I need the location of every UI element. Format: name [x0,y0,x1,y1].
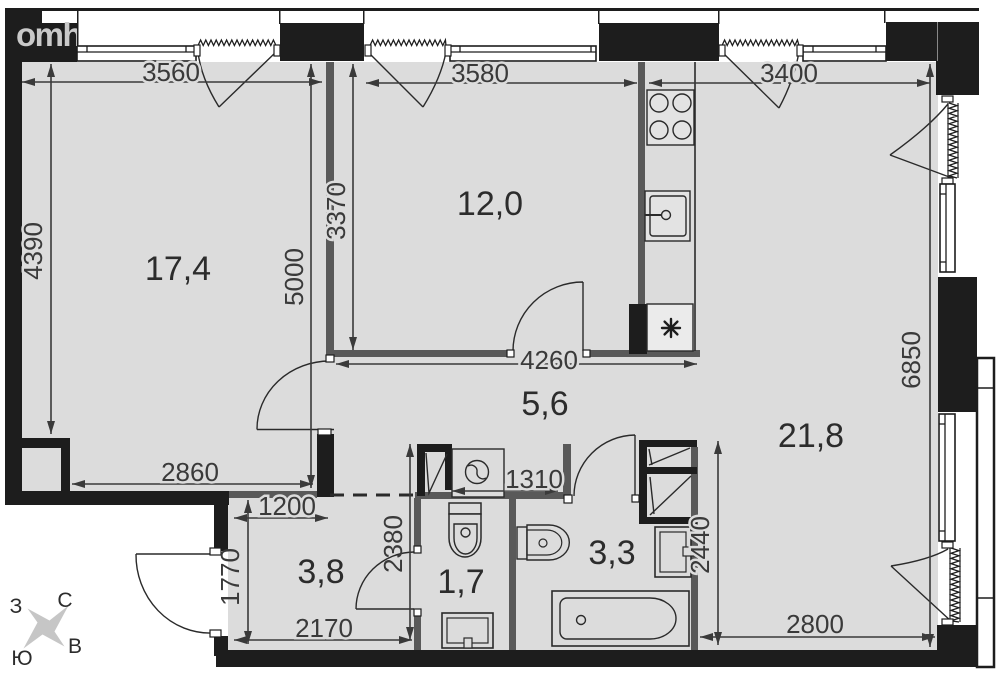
svg-text:3,3: 3,3 [588,534,635,572]
svg-text:2800: 2800 [786,609,844,639]
svg-text:omh: omh [16,16,82,53]
svg-text:1,7: 1,7 [437,563,484,601]
svg-text:2170: 2170 [295,613,353,643]
svg-text:2440: 2440 [685,516,715,574]
svg-text:6850: 6850 [896,331,926,389]
svg-text:5000: 5000 [279,248,309,306]
svg-text:4390: 4390 [18,222,48,280]
svg-text:В: В [68,635,82,658]
svg-text:2860: 2860 [161,457,219,487]
svg-text:5,6: 5,6 [521,385,568,423]
svg-text:21,8: 21,8 [778,417,844,455]
svg-text:12,0: 12,0 [457,185,523,223]
svg-text:17,4: 17,4 [145,250,211,288]
svg-text:3580: 3580 [451,58,509,88]
svg-text:3400: 3400 [760,58,818,88]
svg-text:С: С [57,589,72,612]
svg-text:1200: 1200 [258,491,316,521]
svg-text:З: З [10,595,23,618]
svg-text:4260: 4260 [520,345,578,375]
svg-text:3,8: 3,8 [297,553,344,591]
svg-text:1770: 1770 [215,548,245,606]
svg-text:2380: 2380 [378,515,408,573]
svg-text:3560: 3560 [142,57,200,87]
svg-text:Ю: Ю [11,647,32,670]
svg-text:1310: 1310 [505,464,563,494]
svg-text:3370: 3370 [321,182,351,240]
